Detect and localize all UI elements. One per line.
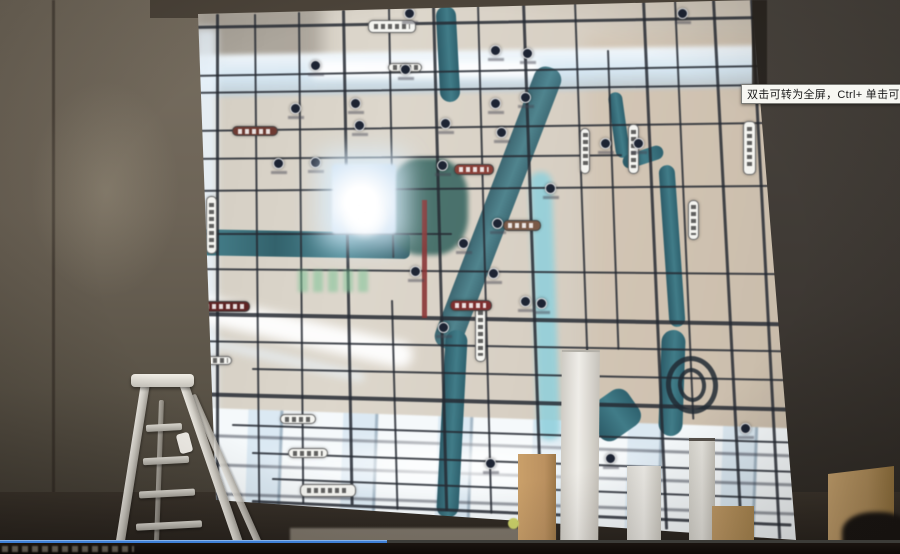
player-control-bar[interactable]	[0, 543, 900, 554]
ladder-step	[136, 520, 202, 530]
yellow-object	[508, 518, 519, 529]
fullscreen-tooltip-text: 双击可转为全屏，Ctrl+ 单击可转为	[747, 89, 900, 101]
ladder-step	[143, 456, 189, 465]
foreground-pillar	[560, 350, 600, 554]
video-frame[interactable]: 双击可转为全屏，Ctrl+ 单击可转为	[0, 0, 900, 554]
foreground-box	[518, 454, 556, 554]
ladder-step	[139, 489, 195, 499]
ladder-rail	[153, 400, 164, 554]
ladder-rail	[179, 382, 247, 554]
ladder-rail	[189, 394, 265, 552]
ladder-step	[146, 423, 182, 432]
fullscreen-tooltip: 双击可转为全屏，Ctrl+ 单击可转为	[741, 84, 900, 104]
ladder-hinge	[176, 432, 194, 455]
watermark-noise	[2, 546, 134, 552]
ladder-top-cap	[131, 374, 194, 387]
